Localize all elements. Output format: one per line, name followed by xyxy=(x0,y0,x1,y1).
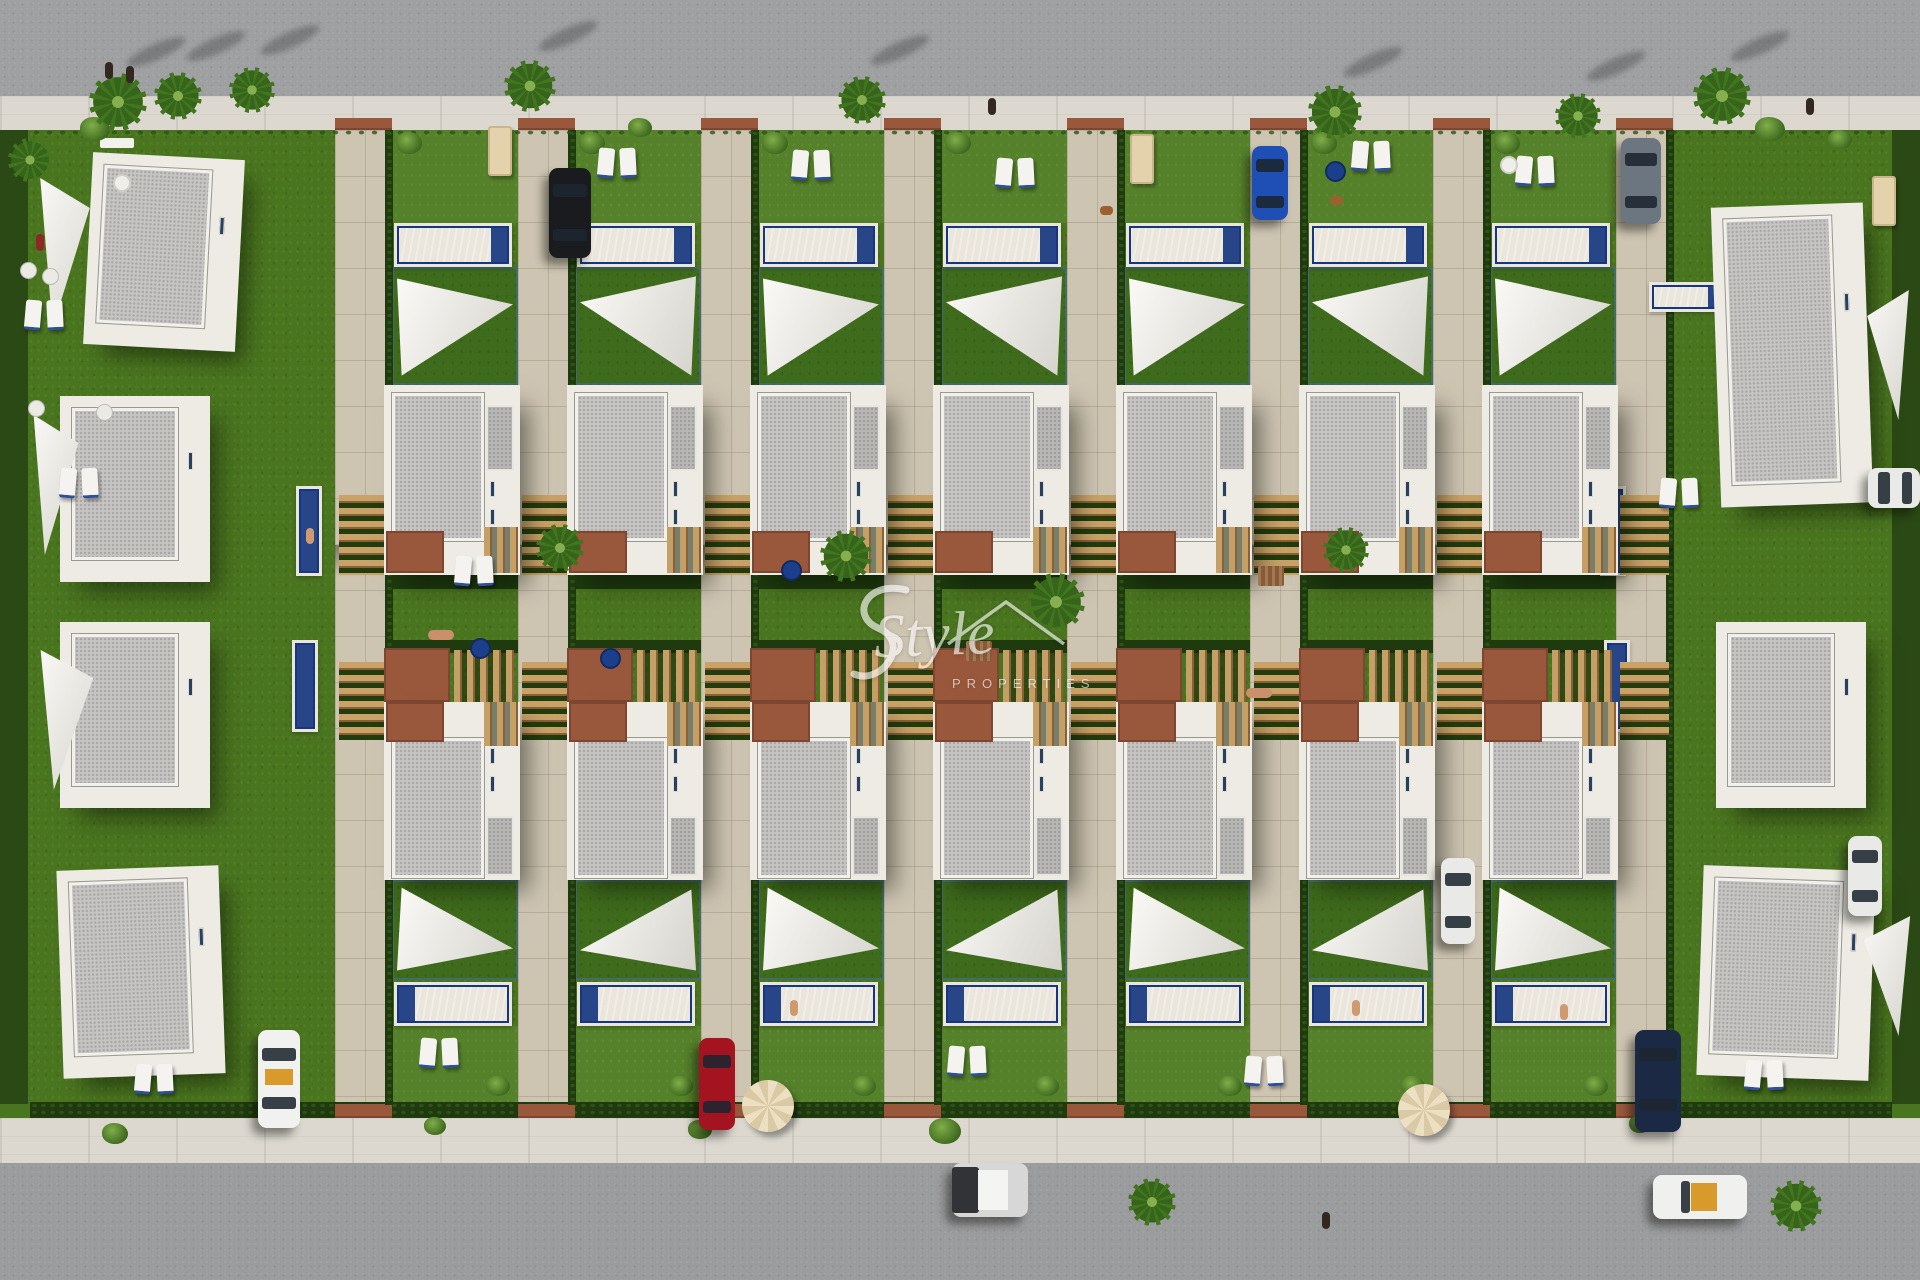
sun-lounger xyxy=(1537,156,1555,187)
palm-tree-icon xyxy=(8,138,52,182)
bush-icon xyxy=(1828,130,1852,149)
driveway-curb xyxy=(884,1104,941,1118)
bush-icon xyxy=(1755,117,1785,141)
dog xyxy=(1330,196,1343,205)
pedestrian xyxy=(988,98,996,115)
car-navy xyxy=(1635,1030,1681,1132)
sunbather xyxy=(428,630,454,640)
pergola-terrace xyxy=(750,648,816,702)
shrub xyxy=(945,132,971,154)
pool-deep-end xyxy=(674,228,690,262)
annex-roof xyxy=(1401,405,1429,471)
window xyxy=(1405,748,1410,764)
gravel-roof xyxy=(758,738,850,878)
driveway-curb xyxy=(1250,1104,1307,1118)
cypress-hedge xyxy=(751,130,759,1105)
car-interior xyxy=(1691,1183,1717,1211)
sun-lounger xyxy=(81,468,99,499)
pool-deep-end xyxy=(948,987,964,1021)
gravel-roof xyxy=(1728,634,1834,786)
round-table xyxy=(113,174,131,192)
window xyxy=(673,509,678,525)
terracotta-terrace xyxy=(935,531,993,573)
driveway xyxy=(518,130,575,1105)
shrub xyxy=(1218,1076,1242,1096)
sun-lounger-pair xyxy=(1352,141,1396,175)
pool-water xyxy=(1129,985,1241,1023)
sun-lounger xyxy=(791,149,810,180)
shrub xyxy=(396,132,422,154)
car-windshield xyxy=(553,184,587,197)
sun-lounger xyxy=(1351,140,1370,171)
villa-building xyxy=(1482,702,1618,880)
dining-table xyxy=(1872,176,1896,226)
window xyxy=(1039,748,1044,764)
cypress-hedge xyxy=(1666,130,1674,1105)
window xyxy=(1222,776,1227,792)
pergola-terrace xyxy=(1299,648,1365,702)
pool-water xyxy=(1495,226,1607,264)
bush-icon xyxy=(424,1117,446,1135)
pergola-terrace xyxy=(1116,648,1182,702)
picnic-table xyxy=(1258,566,1284,586)
sun-lounger-pair xyxy=(60,468,104,502)
driveway xyxy=(335,130,392,1105)
car-windshield xyxy=(1445,873,1471,886)
car-roof xyxy=(978,1170,1008,1210)
car-rear-glass xyxy=(553,229,587,241)
sun-lounger-pair xyxy=(455,556,499,590)
bush-icon xyxy=(102,1123,128,1144)
gravel-roof xyxy=(1124,738,1216,878)
communal-hedge-upper xyxy=(335,575,1673,589)
window xyxy=(490,748,495,764)
wood-deck xyxy=(1399,702,1433,746)
palm-tree-icon xyxy=(1555,93,1601,139)
swimming-pool xyxy=(943,982,1061,1026)
bush-icon xyxy=(929,1118,961,1144)
terracotta-terrace xyxy=(752,702,810,742)
pergola-stairs xyxy=(888,662,937,740)
pool-water xyxy=(946,226,1058,264)
sun-lounger-pair xyxy=(1516,156,1560,190)
sun-lounger-pair xyxy=(420,1038,464,1072)
window xyxy=(1588,748,1593,764)
pool-deep-end xyxy=(582,987,598,1021)
sun-lounger-pair xyxy=(792,150,836,184)
annex-roof xyxy=(1035,816,1063,876)
sun-lounger xyxy=(46,300,64,331)
car-interior xyxy=(265,1069,293,1085)
window xyxy=(856,748,861,764)
cypress-hedge xyxy=(934,130,942,1105)
car-windshield xyxy=(1878,472,1890,504)
annex-roof xyxy=(1401,816,1429,876)
terracotta-terrace xyxy=(1118,531,1176,573)
sun-lounger xyxy=(1744,1059,1763,1090)
gravel-roof xyxy=(96,165,212,328)
pergola-stairs xyxy=(1620,662,1669,740)
terracotta-terrace xyxy=(569,702,627,742)
gravel-roof xyxy=(72,634,178,786)
car-white-taxi xyxy=(258,1030,300,1128)
window xyxy=(1851,933,1857,951)
palm-tree-icon xyxy=(820,530,872,582)
picnic-table xyxy=(966,641,992,661)
swimmer xyxy=(306,528,314,544)
pergola-stairs xyxy=(1437,495,1486,575)
pool-water xyxy=(1312,985,1424,1023)
terracotta-terrace xyxy=(1301,702,1359,742)
car-rear-glass xyxy=(1256,196,1284,208)
gravel-roof xyxy=(1723,216,1840,486)
window xyxy=(1844,293,1850,311)
gravel-roof xyxy=(575,738,667,878)
wood-deck xyxy=(667,527,701,573)
window xyxy=(1039,481,1044,497)
car-red xyxy=(699,1038,735,1130)
pool-water xyxy=(397,985,509,1023)
round-table xyxy=(600,648,621,669)
sun-lounger-pair xyxy=(1245,1056,1289,1090)
pool-deep-end xyxy=(857,228,873,262)
shrub xyxy=(1035,1076,1059,1096)
wood-deck xyxy=(1033,702,1067,746)
annex-roof xyxy=(486,816,514,876)
car-windshield xyxy=(262,1048,296,1061)
cypress-hedge xyxy=(1483,130,1491,1105)
pool-water xyxy=(1495,985,1607,1023)
annex-roof xyxy=(1218,405,1246,471)
swimming-pool xyxy=(1309,982,1427,1026)
aerial-render: Style PROPERTIES xyxy=(0,0,1920,1280)
cypress-hedge xyxy=(1117,130,1125,1105)
sun-lounger xyxy=(597,147,616,178)
wood-deck xyxy=(850,702,884,746)
gravel-roof xyxy=(392,738,484,878)
driveway-curb xyxy=(518,1104,575,1118)
window xyxy=(673,748,678,764)
pool-deep-end xyxy=(399,987,415,1021)
palm-tree-icon xyxy=(1770,1180,1822,1232)
pergola-terrace xyxy=(1482,648,1548,702)
sun-lounger xyxy=(1244,1055,1263,1086)
shrub xyxy=(669,1076,693,1096)
palm-tree-icon xyxy=(1693,67,1751,125)
pergola-stairs xyxy=(339,662,388,740)
gravel-roof xyxy=(941,738,1033,878)
pergola-stairs xyxy=(522,662,571,740)
pergola-stairs xyxy=(1437,662,1486,740)
wood-deck xyxy=(1582,702,1616,746)
pool-water xyxy=(397,226,509,264)
pool-water xyxy=(763,226,875,264)
gravel-roof xyxy=(941,393,1033,541)
pool-water xyxy=(580,226,692,264)
sunbather xyxy=(1246,688,1272,698)
driveway xyxy=(1433,130,1490,1105)
annex-roof xyxy=(1218,816,1246,876)
pool-deep-end xyxy=(1589,228,1605,262)
window xyxy=(490,509,495,525)
sun-lounger-pair xyxy=(1745,1060,1789,1094)
sun-lounger-pair xyxy=(135,1064,179,1098)
car-white xyxy=(1868,468,1920,508)
sun-lounger-pair xyxy=(25,300,69,334)
swimming-pool xyxy=(760,982,878,1026)
car-rear-glass xyxy=(1625,196,1657,208)
sun-lounger xyxy=(1659,477,1678,508)
window xyxy=(199,928,205,946)
pergola-stairs xyxy=(705,495,754,575)
pergola-stairs xyxy=(1071,495,1120,575)
window xyxy=(188,678,193,696)
car-rear-glass xyxy=(1445,916,1471,928)
villa-building xyxy=(567,702,703,880)
gravel-roof xyxy=(1307,738,1399,878)
sun-lounger xyxy=(813,150,831,181)
palm-tree-icon xyxy=(154,72,202,120)
villa-building xyxy=(1482,385,1618,575)
garden-bench xyxy=(100,138,134,148)
pool-deep-end xyxy=(1497,987,1513,1021)
window xyxy=(188,452,193,470)
villa-building xyxy=(933,385,1069,575)
gravel-roof xyxy=(1124,393,1216,541)
villa-building xyxy=(384,385,520,575)
swimming-pool xyxy=(943,223,1061,267)
pedestrian xyxy=(1322,1212,1330,1229)
sun-lounger xyxy=(1017,158,1035,189)
window xyxy=(1405,509,1410,525)
car-blue xyxy=(1252,146,1288,220)
villa-building xyxy=(567,385,703,575)
garden-chair xyxy=(96,404,113,421)
car-rear-glass xyxy=(703,1101,731,1113)
gravel-roof xyxy=(1490,393,1582,541)
rear-hedge-row-bottom xyxy=(30,1102,1892,1118)
car-windshield xyxy=(1639,1048,1677,1061)
pool-water xyxy=(580,985,692,1023)
sun-lounger xyxy=(1266,1056,1284,1087)
car-windshield xyxy=(1625,153,1657,166)
sun-lounger xyxy=(1515,155,1534,186)
pergola-terrace xyxy=(384,648,450,702)
sun-lounger xyxy=(134,1063,153,1094)
sun-lounger-pair xyxy=(598,148,642,182)
pergola-stairs xyxy=(1071,662,1120,740)
villa-building xyxy=(1299,702,1435,880)
villa-building xyxy=(750,702,886,880)
wood-deck xyxy=(1399,527,1433,573)
shrub xyxy=(1584,1076,1608,1096)
car-rear-glass xyxy=(1902,472,1912,504)
pedestrian xyxy=(36,234,44,251)
round-table xyxy=(781,560,802,581)
dog xyxy=(1100,206,1113,215)
wood-deck xyxy=(1216,702,1250,746)
swimming-pool xyxy=(1126,982,1244,1026)
car-windshield xyxy=(1681,1181,1690,1213)
window xyxy=(219,216,225,234)
terracotta-terrace xyxy=(1484,531,1542,573)
swimmer xyxy=(1352,1000,1360,1016)
palm-tree-icon xyxy=(229,67,275,113)
wood-deck xyxy=(1033,527,1067,573)
sun-lounger xyxy=(1766,1060,1784,1091)
pergola-stairs xyxy=(705,662,754,740)
window xyxy=(1222,481,1227,497)
pool-deep-end xyxy=(491,228,507,262)
terracotta-terrace xyxy=(386,531,444,573)
annex-roof xyxy=(486,405,514,471)
wood-deck xyxy=(484,702,518,746)
wood-pergola xyxy=(1186,650,1246,702)
car-windshield xyxy=(1256,159,1284,172)
window xyxy=(1222,748,1227,764)
terracotta-terrace xyxy=(935,702,993,742)
shrub xyxy=(852,1076,876,1096)
palm-tree-icon xyxy=(838,76,886,124)
pergola-stairs xyxy=(1254,495,1303,575)
sun-lounger-pair xyxy=(1660,478,1704,512)
window xyxy=(673,481,678,497)
pool-water xyxy=(763,985,875,1023)
pool-water xyxy=(1312,226,1424,264)
corner-villa xyxy=(1716,622,1866,808)
gravel-roof xyxy=(1709,877,1843,1057)
palm-tree-icon xyxy=(1323,527,1369,573)
driveway-curb xyxy=(335,1104,392,1118)
annex-roof xyxy=(669,405,697,471)
garden-chair xyxy=(28,400,45,417)
swimming-pool xyxy=(1126,223,1244,267)
sun-lounger xyxy=(1373,141,1391,172)
car-rear-glass xyxy=(1639,1099,1677,1111)
pedestrian xyxy=(1806,98,1814,115)
swimming-pool xyxy=(394,982,512,1026)
window xyxy=(1405,776,1410,792)
window xyxy=(1222,509,1227,525)
palm-tree-icon xyxy=(1308,85,1362,139)
annex-roof xyxy=(1584,816,1612,876)
palm-tree-icon xyxy=(1027,573,1085,631)
sun-lounger xyxy=(969,1046,987,1077)
wood-deck xyxy=(1216,527,1250,573)
villa-building xyxy=(1116,385,1252,575)
window xyxy=(1039,509,1044,525)
round-table xyxy=(470,638,491,659)
villa-building xyxy=(1116,702,1252,880)
wood-pergola xyxy=(1003,650,1063,702)
sun-lounger xyxy=(156,1064,174,1095)
round-table xyxy=(1325,161,1346,182)
parasol xyxy=(742,1080,794,1132)
sun-lounger xyxy=(441,1038,459,1069)
car-white xyxy=(1441,858,1475,944)
round-table xyxy=(1500,156,1518,174)
shrub xyxy=(762,132,788,154)
window xyxy=(856,509,861,525)
palm-tree-icon xyxy=(89,73,147,131)
shrub xyxy=(1494,132,1520,154)
car-black xyxy=(549,168,591,258)
villa-building xyxy=(933,702,1069,880)
corner-villa xyxy=(60,622,210,808)
pool-deep-end xyxy=(1131,987,1147,1021)
swimming-pool xyxy=(394,223,512,267)
wood-pergola xyxy=(1369,650,1429,702)
gravel-roof xyxy=(1490,738,1582,878)
window xyxy=(1588,509,1593,525)
annex-roof xyxy=(669,816,697,876)
car-hood xyxy=(952,1167,979,1213)
sun-lounger xyxy=(947,1045,966,1076)
window xyxy=(1588,481,1593,497)
annex-roof xyxy=(852,405,880,471)
car-gray xyxy=(1621,138,1661,224)
pool-deep-end xyxy=(1223,228,1239,262)
driveway xyxy=(701,130,758,1105)
window xyxy=(1844,678,1849,696)
window xyxy=(673,776,678,792)
window xyxy=(856,481,861,497)
shrub xyxy=(486,1076,510,1096)
corner-villa xyxy=(1711,202,1873,507)
terracotta-terrace xyxy=(1484,702,1542,742)
terracotta-terrace xyxy=(386,702,444,742)
driveway-curb xyxy=(1067,1104,1124,1118)
terracotta-terrace xyxy=(1118,702,1176,742)
pedestrian xyxy=(105,62,113,79)
sun-lounger xyxy=(1681,478,1699,509)
bush-icon xyxy=(628,118,652,137)
cypress-hedge xyxy=(1300,130,1308,1105)
cypress-hedge xyxy=(385,130,393,1105)
swimming-pool xyxy=(577,223,695,267)
swimmer xyxy=(1560,1004,1568,1020)
swimming-pool xyxy=(1309,223,1427,267)
dining-table xyxy=(1130,134,1154,184)
pool-deep-end xyxy=(1406,228,1422,262)
pergola-stairs xyxy=(888,495,937,575)
window xyxy=(490,481,495,497)
pool-deep-end xyxy=(1314,987,1330,1021)
palm-tree-icon xyxy=(536,524,584,572)
sun-lounger xyxy=(454,555,473,586)
villa-building xyxy=(384,702,520,880)
gravel-roof xyxy=(1307,393,1399,541)
sun-lounger xyxy=(995,157,1014,188)
swimming-pool xyxy=(1492,982,1610,1026)
car-rear-glass xyxy=(1852,890,1878,902)
swimming-pool xyxy=(577,982,695,1026)
wood-pergola xyxy=(637,650,697,702)
gravel-roof xyxy=(758,393,850,541)
driveway xyxy=(1616,130,1673,1105)
window xyxy=(490,776,495,792)
car-white xyxy=(1848,836,1882,916)
sun-lounger xyxy=(24,299,43,330)
sun-lounger xyxy=(59,467,78,498)
window xyxy=(1405,481,1410,497)
plunge-pool xyxy=(292,640,318,732)
dining-table xyxy=(488,126,512,176)
wood-pergola xyxy=(1552,650,1612,702)
car-windshield xyxy=(1852,850,1878,863)
swimming-pool xyxy=(760,223,878,267)
wood-deck xyxy=(667,702,701,746)
